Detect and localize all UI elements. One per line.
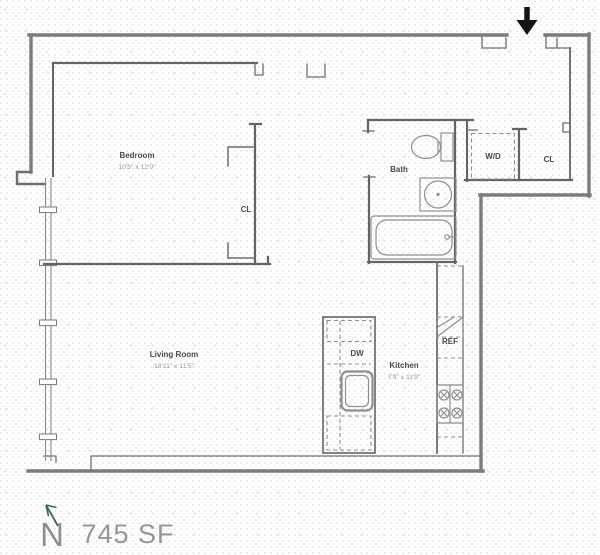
kitchen-label: Kitchen bbox=[389, 361, 418, 370]
refrigerator-label: REF bbox=[442, 337, 458, 346]
bath-label: Bath bbox=[390, 165, 408, 174]
kitchen-sink-icon bbox=[342, 372, 373, 411]
dishwasher-label: DW bbox=[350, 349, 364, 358]
refrigerator-cabinet bbox=[437, 317, 463, 337]
floor-plan-svg: Bedroom 10'5" x 12'0" Living Room 18'11"… bbox=[0, 0, 600, 555]
bedroom-closet-label: CL bbox=[241, 205, 252, 214]
kitchen-island bbox=[323, 317, 375, 453]
stove-icon bbox=[437, 385, 463, 423]
kitchen-dims: 7'9" x 11'9" bbox=[388, 374, 422, 381]
bedroom-dims: 10'5" x 12'0" bbox=[118, 164, 156, 171]
utility-closet-walls bbox=[465, 48, 572, 181]
toilet-icon bbox=[412, 133, 454, 161]
floor-plan: Bedroom 10'5" x 12'0" Living Room 18'11"… bbox=[0, 0, 600, 555]
washer-dryer-label: W/D bbox=[485, 152, 501, 161]
bath-sink-icon bbox=[420, 178, 456, 211]
entry-closet-label: CL bbox=[544, 155, 555, 164]
living-room-label: Living Room bbox=[150, 350, 198, 359]
window-mullions bbox=[40, 207, 57, 440]
kitchen-counter-east bbox=[437, 262, 463, 453]
entry-arrow-icon bbox=[517, 7, 538, 35]
bedroom-closet-walls bbox=[228, 147, 253, 258]
exterior-walls bbox=[17, 34, 590, 471]
bedroom-label: Bedroom bbox=[119, 151, 154, 160]
north-label: N bbox=[40, 516, 64, 553]
bedroom-walls bbox=[44, 63, 325, 264]
window-wall bbox=[40, 178, 57, 461]
area-label: 745 SF bbox=[81, 519, 174, 549]
living-room-dims: 18'11" x 11'5" bbox=[154, 363, 195, 370]
bathtub-icon bbox=[371, 216, 456, 259]
